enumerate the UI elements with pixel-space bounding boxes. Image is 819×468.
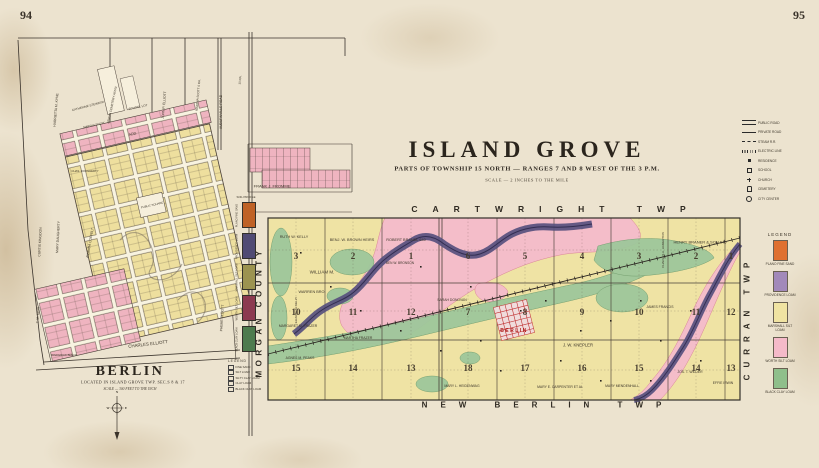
electric-line-sample (742, 150, 756, 153)
map-key: PUBLIC ROADPRIVATE ROADSTEAM R.R.ELECTRI… (742, 118, 790, 204)
soil-profile-swatch (242, 326, 256, 352)
plat-label: CHAS. DOUGHERTY (71, 169, 98, 173)
section-number: 5 (523, 251, 528, 261)
parcel-label: J. W. KNEPLER (563, 343, 593, 348)
steam-rr-sample (742, 141, 756, 142)
section-number: 18 (464, 363, 473, 373)
soil-profile-swatch (242, 295, 256, 321)
cemetery-icon (742, 186, 756, 192)
soil-strip-legend-items: FINE SANDSILT LOAMSILTY CLAY LOAMCLAY LO… (228, 365, 264, 393)
residence-icon (748, 159, 751, 162)
plat-label: FRANK J. FROMME (254, 184, 291, 189)
parcel-label: EFFIE IRWIN (713, 381, 733, 385)
section-number: 2 (351, 251, 356, 261)
church-icon (747, 178, 751, 182)
section-number: 17 (521, 363, 530, 373)
soil-profile-swatch (242, 233, 256, 259)
key-label: PUBLIC ROAD (758, 121, 780, 125)
public-road-sample (742, 120, 756, 125)
section-number: 15 (292, 363, 301, 373)
compass-w: W (106, 406, 109, 410)
legend-swatch (773, 302, 788, 323)
section-number: 12 (407, 307, 416, 317)
page-number-right: 95 (793, 8, 805, 23)
section-number: 4 (580, 251, 585, 261)
legend-item: BLACK CLAY LOAM (759, 368, 801, 394)
key-row: CHURCH (742, 175, 790, 185)
public-road-sample (742, 120, 756, 125)
legend-label: BLACK CLAY LOAM (763, 390, 797, 394)
key-label: RESIDENCE (758, 159, 777, 163)
berlin-title: BERLIN (96, 364, 165, 380)
soil-profile-label: BLACK CLAY LOAM (236, 320, 239, 360)
section-number: 1 (729, 251, 734, 261)
section-number: 16 (578, 363, 587, 373)
compass-n: N (116, 390, 118, 394)
parcel-label: HENRY BRANER & SON 640 (674, 240, 727, 245)
soil-profile-swatches: PLANO FINE SANDPROVIDENCE LOAMMARSHALL S… (228, 199, 264, 354)
soil-profile-strip: SOIL PROFILE PLANO FINE SANDPROVIDENCE L… (228, 196, 264, 393)
legend-item: PROVIDENCE LOAM (759, 271, 801, 297)
berlin-scale-note: SCALE — 300 FEET TO THE INCH (104, 387, 157, 391)
fromme-addition (250, 148, 350, 188)
steam-rr-sample (742, 141, 756, 142)
section-number: 9 (580, 307, 585, 317)
section-number: 3 (294, 251, 299, 261)
section-number: 8 (523, 307, 528, 317)
section-number: 10 (635, 307, 644, 317)
soil-profile-swatch (242, 202, 256, 228)
legend-label: PROVIDENCE LOAM (763, 293, 797, 297)
city-center-icon (742, 196, 756, 202)
section-number: 1 (409, 251, 414, 261)
section-number: 3 (637, 251, 642, 261)
electric-line-sample (742, 150, 756, 153)
legend-swatch (773, 337, 788, 358)
parcel-label: MARY L. HEIDENWAG (444, 384, 479, 388)
map-graphics (0, 0, 819, 468)
key-row: STEAM R.R. (742, 137, 790, 147)
key-row: RESIDENCE (742, 156, 790, 166)
edge-label-cartwright-twp: CARTWRIGHT TWP (411, 204, 700, 214)
parcel-label: MARY E. CARPENTER ET AL (537, 385, 583, 389)
key-label: CEMETERY (758, 187, 776, 191)
section-number: 13 (407, 363, 416, 373)
school-icon (747, 168, 752, 173)
compass-e: E (125, 406, 127, 410)
island-grove-scale-note: SCALE — 2 INCHES TO THE MILE (485, 178, 569, 183)
berlin-subtitle: LOCATED IN ISLAND GROVE TWP. SEC.S 8 & 1… (81, 380, 185, 385)
parcel-label: JOS. T. WILDER (677, 370, 702, 374)
legend-swatch (773, 271, 788, 292)
island-grove-subtitle: PARTS OF TOWNSHIP 15 NORTH — RANGES 7 AN… (394, 166, 659, 173)
soil-legend-items: PLANO FINE SANDPROVIDENCE LOAMMARSHALL S… (759, 240, 801, 394)
parcel-label: JAMES FRANCIS (646, 305, 673, 309)
parcel-label: CHARLES A. HAMERTON (661, 232, 665, 268)
plat-label: FREDERICK BRECK (51, 353, 78, 357)
section-number: 11 (349, 307, 358, 317)
atlas-page: 94 95 ISLAND GROVE PARTS OF TOWNSHIP 15 … (0, 0, 819, 468)
key-label: STEAM R.R. (758, 140, 776, 144)
soil-legend-title: LEGEND (759, 232, 801, 237)
parcel-label: AGNES M. PEAKS (286, 356, 315, 360)
legend-label: PLANO FINE SAND (763, 262, 797, 266)
plat-label: 10 RA. (238, 75, 243, 84)
key-label: CHURCH (758, 178, 772, 182)
private-road-sample (742, 132, 756, 133)
edge-label-new-berlin-twp: NEW BERLIN TWP (422, 401, 675, 410)
section-number: 13 (727, 363, 736, 373)
city-center-icon (746, 196, 752, 202)
soil-strip-legend: LEGEND FINE SANDSILT LOAMSILTY CLAY LOAM… (228, 359, 264, 392)
section-number: 12 (727, 307, 736, 317)
cemetery-icon (747, 186, 752, 192)
parcel-label: MARY MENDENHALL (605, 384, 639, 388)
berlin-town-label: BERLIN (500, 328, 528, 334)
key-row: PRIVATE ROAD (742, 128, 790, 138)
parcel-label: BENJ. W. BROWN HEIRS (330, 238, 375, 242)
key-label: CITY CENTER (758, 197, 779, 201)
key-row: CITY CENTER (742, 194, 790, 204)
parcel-label: ROBERT BRANDL 640 (386, 238, 425, 242)
legend-item: PLANO FINE SAND (759, 240, 801, 266)
key-row: PUBLIC ROAD (742, 118, 790, 128)
plat-label: T. M. KING (36, 307, 41, 324)
parcel-label: WARREN BRO. (298, 290, 325, 294)
section-number: 15 (635, 363, 644, 373)
key-row: ELECTRIC LINE (742, 147, 790, 157)
church-icon (742, 178, 756, 182)
legend-label: MARSHALL SILT LOAM (763, 324, 797, 332)
parcel-label: WILLIAM M. (310, 270, 335, 275)
section-number: 2 (694, 251, 699, 261)
island-grove-title: ISLAND GROVE (408, 137, 645, 163)
residence-icon (742, 159, 756, 162)
section-number: 14 (349, 363, 358, 373)
soil-strip-legend-title: LEGEND (228, 359, 264, 363)
soil-profile-item: PROVIDENCE LOAM (228, 230, 264, 261)
key-row: CEMETERY (742, 185, 790, 195)
soil-profile-item: BLACK CLAY LOAM (228, 323, 264, 354)
key-row: SCHOOL (742, 166, 790, 176)
parcel-label: RUTH W. KELLY (280, 235, 309, 239)
island-grove-map (268, 218, 740, 400)
key-label: ELECTRIC LINE (758, 149, 782, 153)
edge-label-curran-twp: CURRAN TWP (743, 256, 752, 381)
section-number: 7 (466, 307, 471, 317)
compass-rose (111, 396, 124, 440)
legend-item: MARSHALL SILT LOAM (759, 302, 801, 332)
soil-profile-swatch (242, 264, 256, 290)
key-label: PRIVATE ROAD (758, 130, 781, 134)
school-icon (742, 168, 756, 173)
legend-swatch (773, 240, 788, 261)
section-number: 6 (466, 251, 471, 261)
soil-profile-item: WORTH SILT LOAM (228, 292, 264, 323)
private-road-sample (742, 132, 756, 133)
soil-profile-item: MARSHALL SILT LOAM (228, 261, 264, 292)
parcel-label: SARAH DONOVAN (437, 298, 467, 302)
legend-swatch (773, 368, 788, 389)
soil-profile-item: PLANO FINE SAND (228, 199, 264, 230)
key-label: SCHOOL (758, 168, 771, 172)
legend-label: WORTH SILT LOAM (763, 359, 797, 363)
soil-legend: LEGEND PLANO FINE SANDPROVIDENCE LOAMMAR… (759, 232, 801, 399)
legend-item: WORTH SILT LOAM (759, 337, 801, 363)
soil-strip-legend-item: BLACK CLAY LOAM (228, 387, 264, 393)
parcel-label: BEN W. BRONSON (386, 261, 414, 265)
parcel-label: MARTHA FRAZER (344, 336, 373, 340)
section-number: 11 (692, 307, 701, 317)
plat-label: AUBURNVILLE ROAD (219, 95, 223, 129)
parcel-label: MARGARET M. FRAZER (279, 324, 317, 328)
page-number-left: 94 (20, 8, 32, 23)
parcel-label: ELIZABETH KELLY (294, 297, 298, 323)
